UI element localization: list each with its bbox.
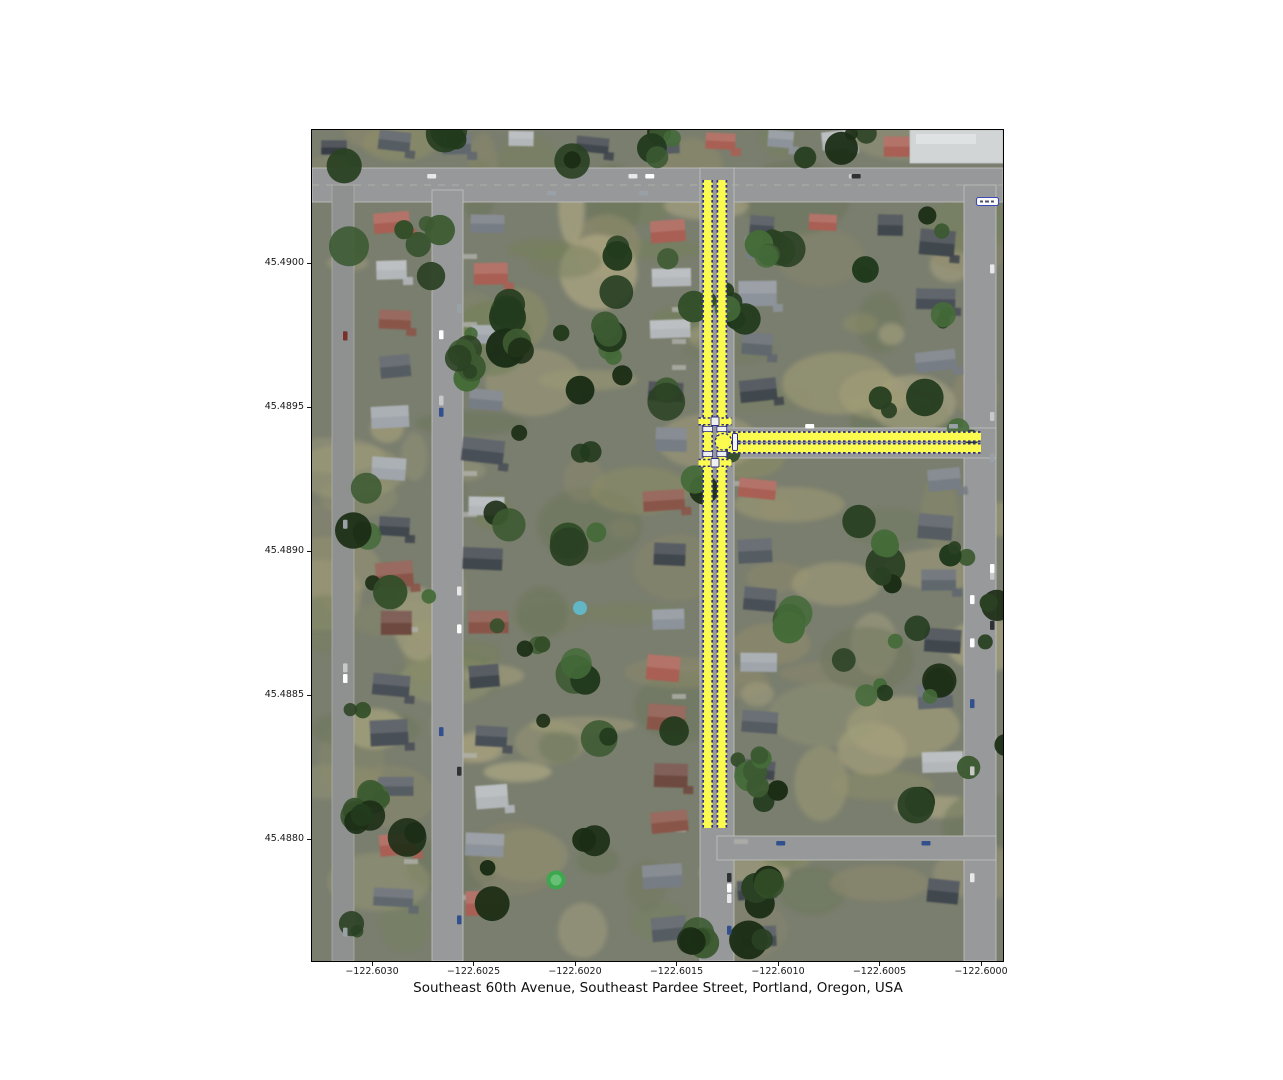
y-tick [307, 407, 311, 408]
figure: 45.4900 45.4895 45.4890 45.4885 45.4880 … [0, 0, 1283, 1080]
x-tick-label: −122.6015 [640, 966, 714, 977]
x-tick-label: −122.6005 [843, 966, 917, 977]
x-tick-label: −122.6030 [335, 966, 409, 977]
building-roof-detail [916, 134, 976, 144]
map-label-pill [977, 198, 999, 206]
trampoline-center [551, 875, 562, 886]
y-tick-label: 45.4885 [242, 689, 304, 700]
y-tick-label: 45.4900 [242, 257, 304, 268]
y-tick-label: 45.4895 [242, 401, 304, 412]
y-tick [307, 263, 311, 264]
road-far-left [332, 185, 354, 961]
axis-xlabel: Southeast 60th Avenue, Southeast Pardee … [308, 980, 1008, 996]
road-bottom-east [717, 836, 996, 860]
x-tick-label: −122.6020 [538, 966, 612, 977]
x-tick-label: −122.6010 [741, 966, 815, 977]
y-tick [307, 695, 311, 696]
x-tick-label: −122.6000 [944, 966, 1018, 977]
pool [573, 601, 587, 615]
y-tick [307, 551, 311, 552]
x-tick-label: −122.6025 [437, 966, 511, 977]
y-tick-label: 45.4890 [242, 545, 304, 556]
y-tick-label: 45.4880 [242, 833, 304, 844]
aerial-imagery [312, 130, 1003, 961]
y-tick [307, 839, 311, 840]
map-plot-area [311, 129, 1004, 962]
